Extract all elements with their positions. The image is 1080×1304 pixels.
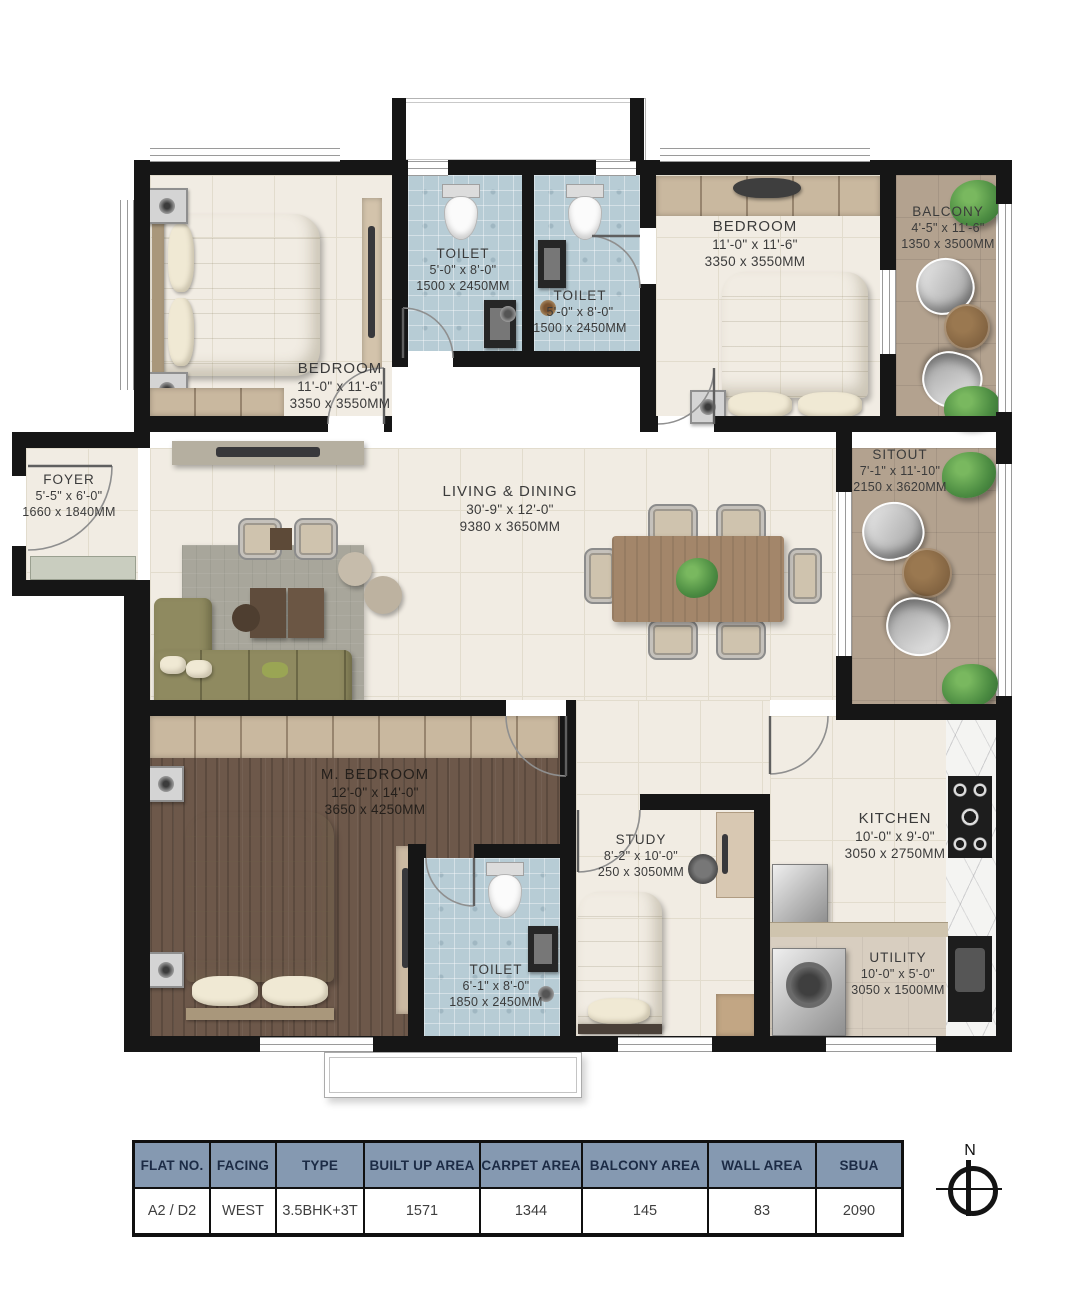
wall: [714, 416, 896, 432]
column-header: CARPET AREA: [481, 1143, 583, 1189]
lamp-icon: [158, 962, 174, 978]
table-cell-facing: WEST: [211, 1189, 277, 1233]
window: [826, 1037, 936, 1052]
room-label-living-dining: LIVING & DINING 30'-9" x 12'-0" 9380 x 3…: [415, 483, 605, 534]
wall: [836, 704, 1012, 720]
window: [150, 148, 340, 162]
counter-divider: [770, 922, 948, 937]
wall: [640, 794, 770, 810]
duct-shaft: [392, 98, 646, 164]
table-cell-sbua: 2090: [817, 1189, 901, 1233]
dining-chair: [716, 620, 766, 660]
lamp-icon: [158, 776, 174, 792]
wall: [134, 416, 328, 432]
slider-balcony: [882, 270, 896, 354]
ledge-outline: [324, 1052, 582, 1098]
wall: [754, 794, 770, 1036]
wall: [996, 696, 1012, 1052]
nightstand: [148, 766, 184, 802]
north-compass: N: [934, 1142, 1006, 1228]
storage-cabinet: [716, 994, 756, 1036]
room-label-toilet-3: TOILET 6'-1" x 8'-0" 1850 x 2450MM: [432, 962, 560, 1009]
window: [660, 148, 870, 162]
room-label-sitout: SITOUT 7'-1" x 11'-10" 2150 x 3620MM: [830, 447, 970, 494]
window-balcony: [998, 204, 1012, 412]
wardrobe: [150, 716, 558, 758]
column-header: BALCONY AREA: [583, 1143, 709, 1189]
bed-headboard: [578, 1024, 662, 1034]
bed-headboard: [152, 214, 164, 376]
tv-icon: [368, 226, 375, 338]
room-label-bedroom-1: BEDROOM 11'-0" x 11'-6" 3350 x 3550MM: [240, 360, 440, 411]
slider-sitout: [838, 492, 852, 656]
wall: [880, 354, 896, 432]
pillow-icon: [160, 656, 186, 674]
window: [408, 161, 448, 176]
wall: [448, 160, 596, 175]
nightstand: [148, 952, 184, 988]
window-sitout: [998, 464, 1012, 696]
wall: [996, 160, 1012, 204]
room-label-foyer: FOYER 5'-5" x 6'-0" 1660 x 1840MM: [8, 472, 130, 519]
round-table: [902, 548, 952, 598]
room-label-balcony: BALCONY 4'-5" x 11'-6" 1350 x 3500MM: [896, 204, 1000, 251]
wall: [408, 844, 426, 858]
wall: [12, 432, 150, 448]
wall: [453, 351, 656, 367]
floor-passage: [576, 700, 770, 794]
wall: [566, 700, 576, 716]
room-label-utility: UTILITY 10'-0" x 5'-0" 3050 x 1500MM: [818, 950, 978, 997]
pillow-icon: [168, 298, 194, 366]
lamp-icon: [159, 198, 175, 214]
room-label-bedroom-2: BEDROOM 11'-0" x 11'-6" 3350 x 3550MM: [655, 218, 855, 269]
wall: [392, 98, 406, 175]
bed-headboard: [186, 1008, 334, 1020]
compass-circle-icon: [948, 1166, 998, 1216]
window: [260, 1037, 373, 1052]
wall: [880, 160, 896, 270]
wall: [12, 580, 124, 596]
side-table: [270, 528, 292, 550]
column-header: WALL AREA: [709, 1143, 817, 1189]
round-side-table: [232, 604, 260, 632]
table-cell-carpet-area: 1344: [481, 1189, 583, 1233]
lamp-icon: [700, 399, 716, 415]
wall: [408, 844, 424, 1036]
table-cell-wall-area: 83: [709, 1189, 817, 1233]
wall: [134, 160, 408, 175]
fridge: [772, 864, 828, 924]
column-header: TYPE: [277, 1143, 365, 1189]
wall: [474, 844, 560, 858]
bed: [722, 272, 868, 398]
column-header: BUILT UP AREA: [365, 1143, 481, 1189]
pillow-icon: [798, 392, 862, 418]
wall: [384, 416, 392, 432]
shower-icon: [500, 306, 516, 322]
ceiling-fan-icon: [733, 178, 801, 198]
pillow-icon: [192, 976, 258, 1006]
round-table: [944, 304, 990, 350]
monitor-icon: [722, 834, 728, 874]
table-row: A2 / D2 WEST 3.5BHK+3T 1571 1344 145 83 …: [135, 1189, 901, 1233]
wall: [134, 160, 150, 448]
table-cell-balcony-area: 145: [583, 1189, 709, 1233]
table-header-row: FLAT NO. FACING TYPE BUILT UP AREA CARPE…: [135, 1143, 901, 1189]
wall: [896, 416, 1012, 432]
wall: [640, 416, 658, 432]
pouf: [364, 576, 402, 614]
column-header: FACING: [211, 1143, 277, 1189]
wall: [636, 160, 1012, 175]
pillow-icon: [262, 976, 328, 1006]
pillow-icon: [588, 998, 650, 1024]
column-header: SBUA: [817, 1143, 901, 1189]
nightstand: [146, 188, 188, 224]
dining-chair: [788, 548, 822, 604]
column-header: FLAT NO.: [135, 1143, 211, 1189]
room-label-toilet-2: TOILET 5'-0" x 8'-0" 1500 x 2450MM: [520, 288, 640, 335]
wall: [124, 580, 150, 1052]
window: [120, 200, 134, 390]
pillow-icon: [168, 224, 194, 292]
window: [618, 1037, 712, 1052]
accent-chair: [294, 518, 338, 560]
window: [596, 161, 636, 176]
wall: [150, 700, 506, 716]
pillow-icon: [262, 662, 288, 678]
coffee-table: [288, 588, 324, 638]
wall: [640, 284, 656, 432]
pillow-icon: [186, 660, 212, 678]
room-label-toilet-1: TOILET 5'-0" x 8'-0" 1500 x 2450MM: [402, 246, 524, 293]
washbasin-icon: [538, 240, 566, 288]
room-label-master-bedroom: M. BEDROOM 12'-0" x 14'-0" 3650 x 4250MM: [275, 766, 475, 817]
flat-summary-table: FLAT NO. FACING TYPE BUILT UP AREA CARPE…: [132, 1140, 904, 1237]
table-cell-flat-no: A2 / D2: [135, 1189, 211, 1233]
table-cell-type: 3.5BHK+3T: [277, 1189, 365, 1233]
pouf: [338, 552, 372, 586]
room-label-study: STUDY 8'-2" x 10'-0" 250 x 3050MM: [578, 832, 704, 879]
floor-plan-canvas: BEDROOM 11'-0" x 11'-6" 3350 x 3550MM TO…: [0, 0, 1080, 1304]
room-label-kitchen: KITCHEN 10'-0" x 9'-0" 3050 x 2750MM: [820, 810, 970, 861]
wall: [640, 175, 656, 228]
table-cell-built-up-area: 1571: [365, 1189, 481, 1233]
bed: [186, 812, 334, 982]
north-label: N: [934, 1142, 1006, 1160]
pillow-icon: [728, 392, 792, 418]
tv-icon: [216, 447, 320, 457]
dining-chair: [648, 620, 698, 660]
wall: [560, 716, 576, 1036]
shoe-cabinet: [30, 556, 136, 580]
